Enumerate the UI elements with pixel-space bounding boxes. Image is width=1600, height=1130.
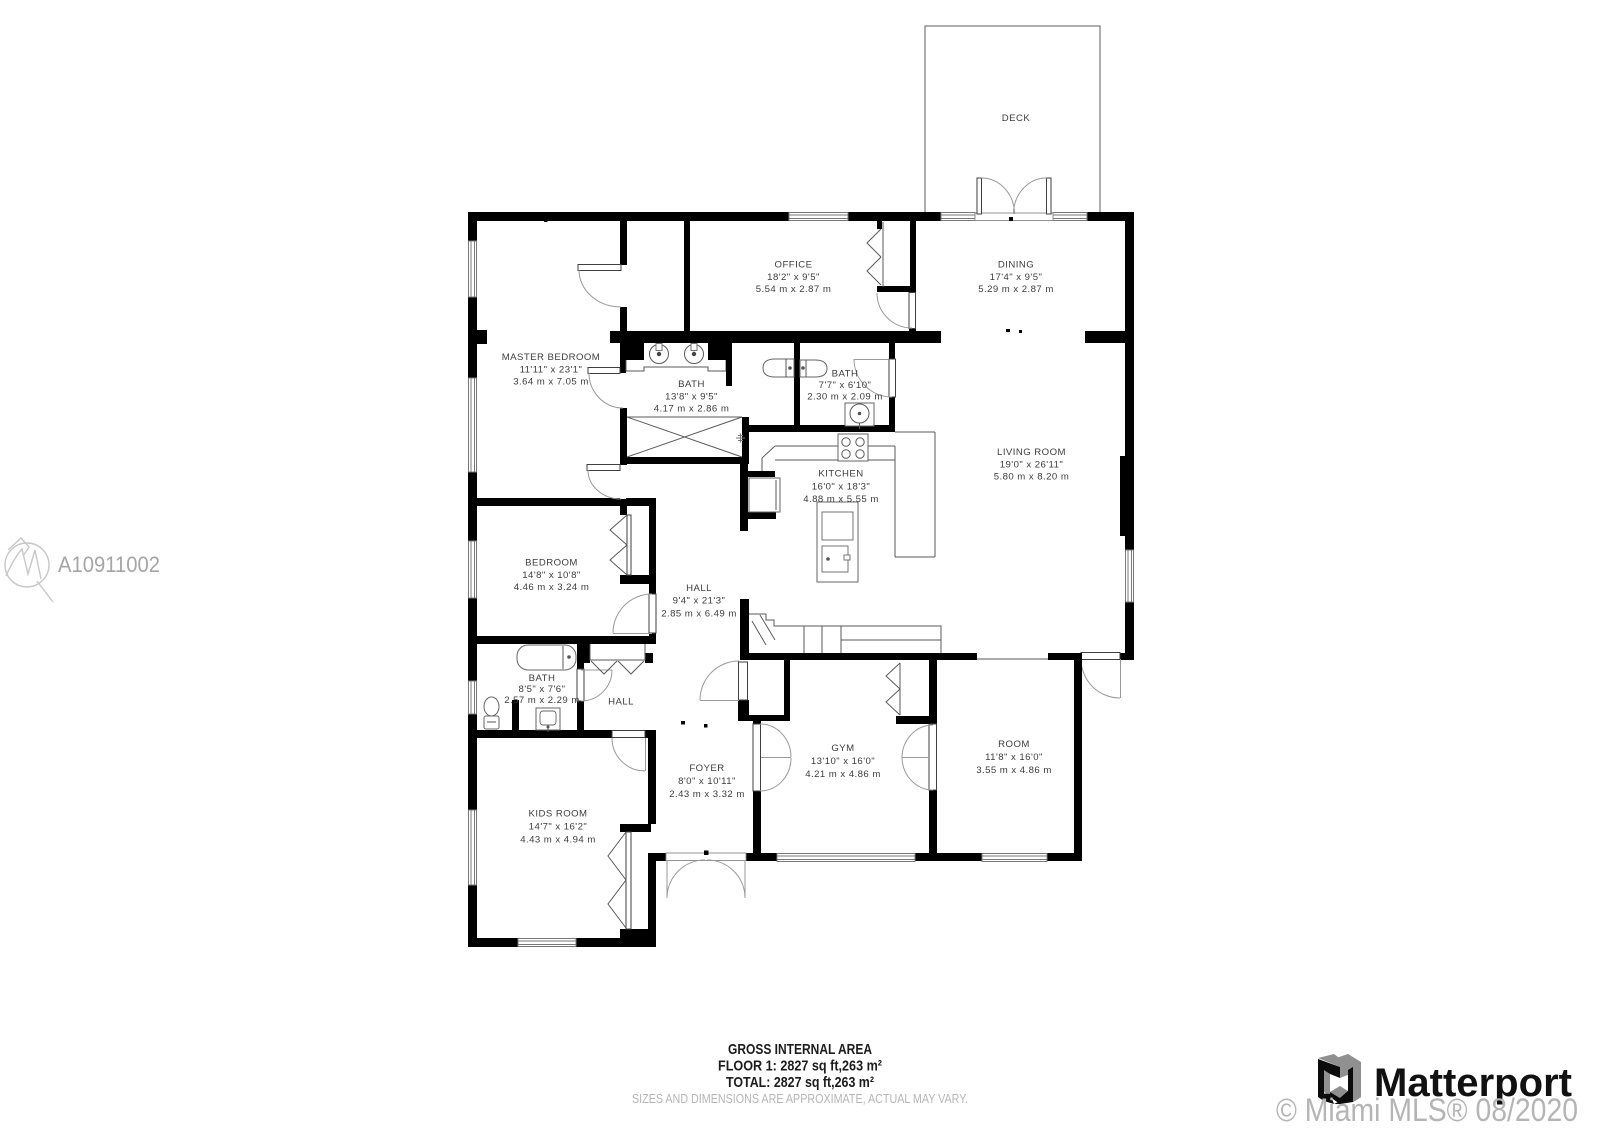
- svg-text:BEDROOM: BEDROOM: [525, 558, 578, 569]
- svg-text:2.30 m x 2.09 m: 2.30 m x 2.09 m: [807, 392, 883, 403]
- svg-text:MASTER BEDROOM: MASTER BEDROOM: [502, 352, 601, 363]
- svg-text:8'5" x 7'6": 8'5" x 7'6": [519, 684, 566, 695]
- svg-text:LIVING ROOM: LIVING ROOM: [997, 447, 1066, 458]
- svg-text:© Miami MLS® 08/2020: © Miami MLS® 08/2020: [1276, 1092, 1578, 1128]
- svg-text:5.54 m x 2.87 m: 5.54 m x 2.87 m: [756, 284, 832, 295]
- svg-text:GROSS INTERNAL AREA: GROSS INTERNAL AREA: [728, 1041, 872, 1058]
- svg-text:HALL: HALL: [608, 697, 634, 708]
- svg-text:FOYER: FOYER: [689, 763, 724, 774]
- svg-text:FLOOR 1: 2827 sq ft,263 m²: FLOOR 1: 2827 sq ft,263 m²: [718, 1058, 882, 1075]
- svg-text:BATH: BATH: [832, 369, 859, 380]
- svg-text:13'10" x 16'0": 13'10" x 16'0": [811, 756, 875, 767]
- svg-text:TOTAL: 2827 sq ft,263 m²: TOTAL: 2827 sq ft,263 m²: [726, 1074, 874, 1091]
- svg-text:OFFICE: OFFICE: [775, 260, 813, 271]
- svg-text:4.88 m x 5.55 m: 4.88 m x 5.55 m: [803, 494, 879, 505]
- svg-text:KITCHEN: KITCHEN: [818, 469, 863, 480]
- svg-text:13'8" x 9'5": 13'8" x 9'5": [665, 391, 718, 402]
- svg-text:4.46 m x 3.24 m: 4.46 m x 3.24 m: [514, 582, 590, 593]
- svg-text:GYM: GYM: [831, 743, 854, 754]
- svg-text:2.57 m x 2.29 m: 2.57 m x 2.29 m: [504, 695, 580, 706]
- svg-text:17'4" x 9'5": 17'4" x 9'5": [990, 272, 1043, 283]
- svg-text:BATH: BATH: [678, 379, 705, 390]
- svg-text:11'11" x 23'1": 11'11" x 23'1": [520, 364, 583, 375]
- svg-text:11'8" x 16'0": 11'8" x 16'0": [985, 752, 1043, 763]
- svg-text:5.80 m x 8.20 m: 5.80 m x 8.20 m: [994, 472, 1070, 483]
- svg-text:3.64 m x 7.05 m: 3.64 m x 7.05 m: [513, 377, 589, 388]
- svg-text:2.85 m x 6.49 m: 2.85 m x 6.49 m: [661, 608, 737, 619]
- svg-text:4.43 m x 4.94 m: 4.43 m x 4.94 m: [520, 835, 596, 846]
- svg-text:A10911002: A10911002: [58, 552, 160, 577]
- svg-text:14'7" x 16'2": 14'7" x 16'2": [529, 822, 587, 833]
- svg-text:18'2" x 9'5": 18'2" x 9'5": [767, 272, 820, 283]
- svg-text:14'8" x 10'8": 14'8" x 10'8": [522, 570, 580, 581]
- svg-text:ROOM: ROOM: [998, 739, 1030, 750]
- svg-text:DECK: DECK: [1002, 113, 1031, 124]
- svg-text:4.21 m x 4.86 m: 4.21 m x 4.86 m: [805, 769, 881, 780]
- svg-text:7'7" x 6'10": 7'7" x 6'10": [819, 380, 872, 391]
- svg-text:DINING: DINING: [998, 260, 1034, 271]
- svg-text:KIDS ROOM: KIDS ROOM: [529, 809, 588, 820]
- svg-text:SIZES AND DIMENSIONS ARE APPRO: SIZES AND DIMENSIONS ARE APPROXIMATE, AC…: [632, 1092, 968, 1106]
- svg-text:3.55 m x 4.86 m: 3.55 m x 4.86 m: [976, 765, 1052, 776]
- svg-text:5.29 m x 2.87 m: 5.29 m x 2.87 m: [978, 284, 1054, 295]
- svg-text:2.43 m x 3.32 m: 2.43 m x 3.32 m: [669, 789, 745, 800]
- svg-text:9'4" x 21'3": 9'4" x 21'3": [673, 596, 726, 607]
- svg-text:16'0" x 18'3": 16'0" x 18'3": [812, 481, 870, 492]
- svg-text:19'0" x 26'11": 19'0" x 26'11": [1000, 459, 1064, 470]
- svg-text:BATH: BATH: [529, 673, 556, 684]
- svg-text:8'0" x 10'11": 8'0" x 10'11": [678, 776, 736, 787]
- svg-text:HALL: HALL: [686, 583, 712, 594]
- svg-text:4.17 m x 2.86 m: 4.17 m x 2.86 m: [654, 404, 730, 415]
